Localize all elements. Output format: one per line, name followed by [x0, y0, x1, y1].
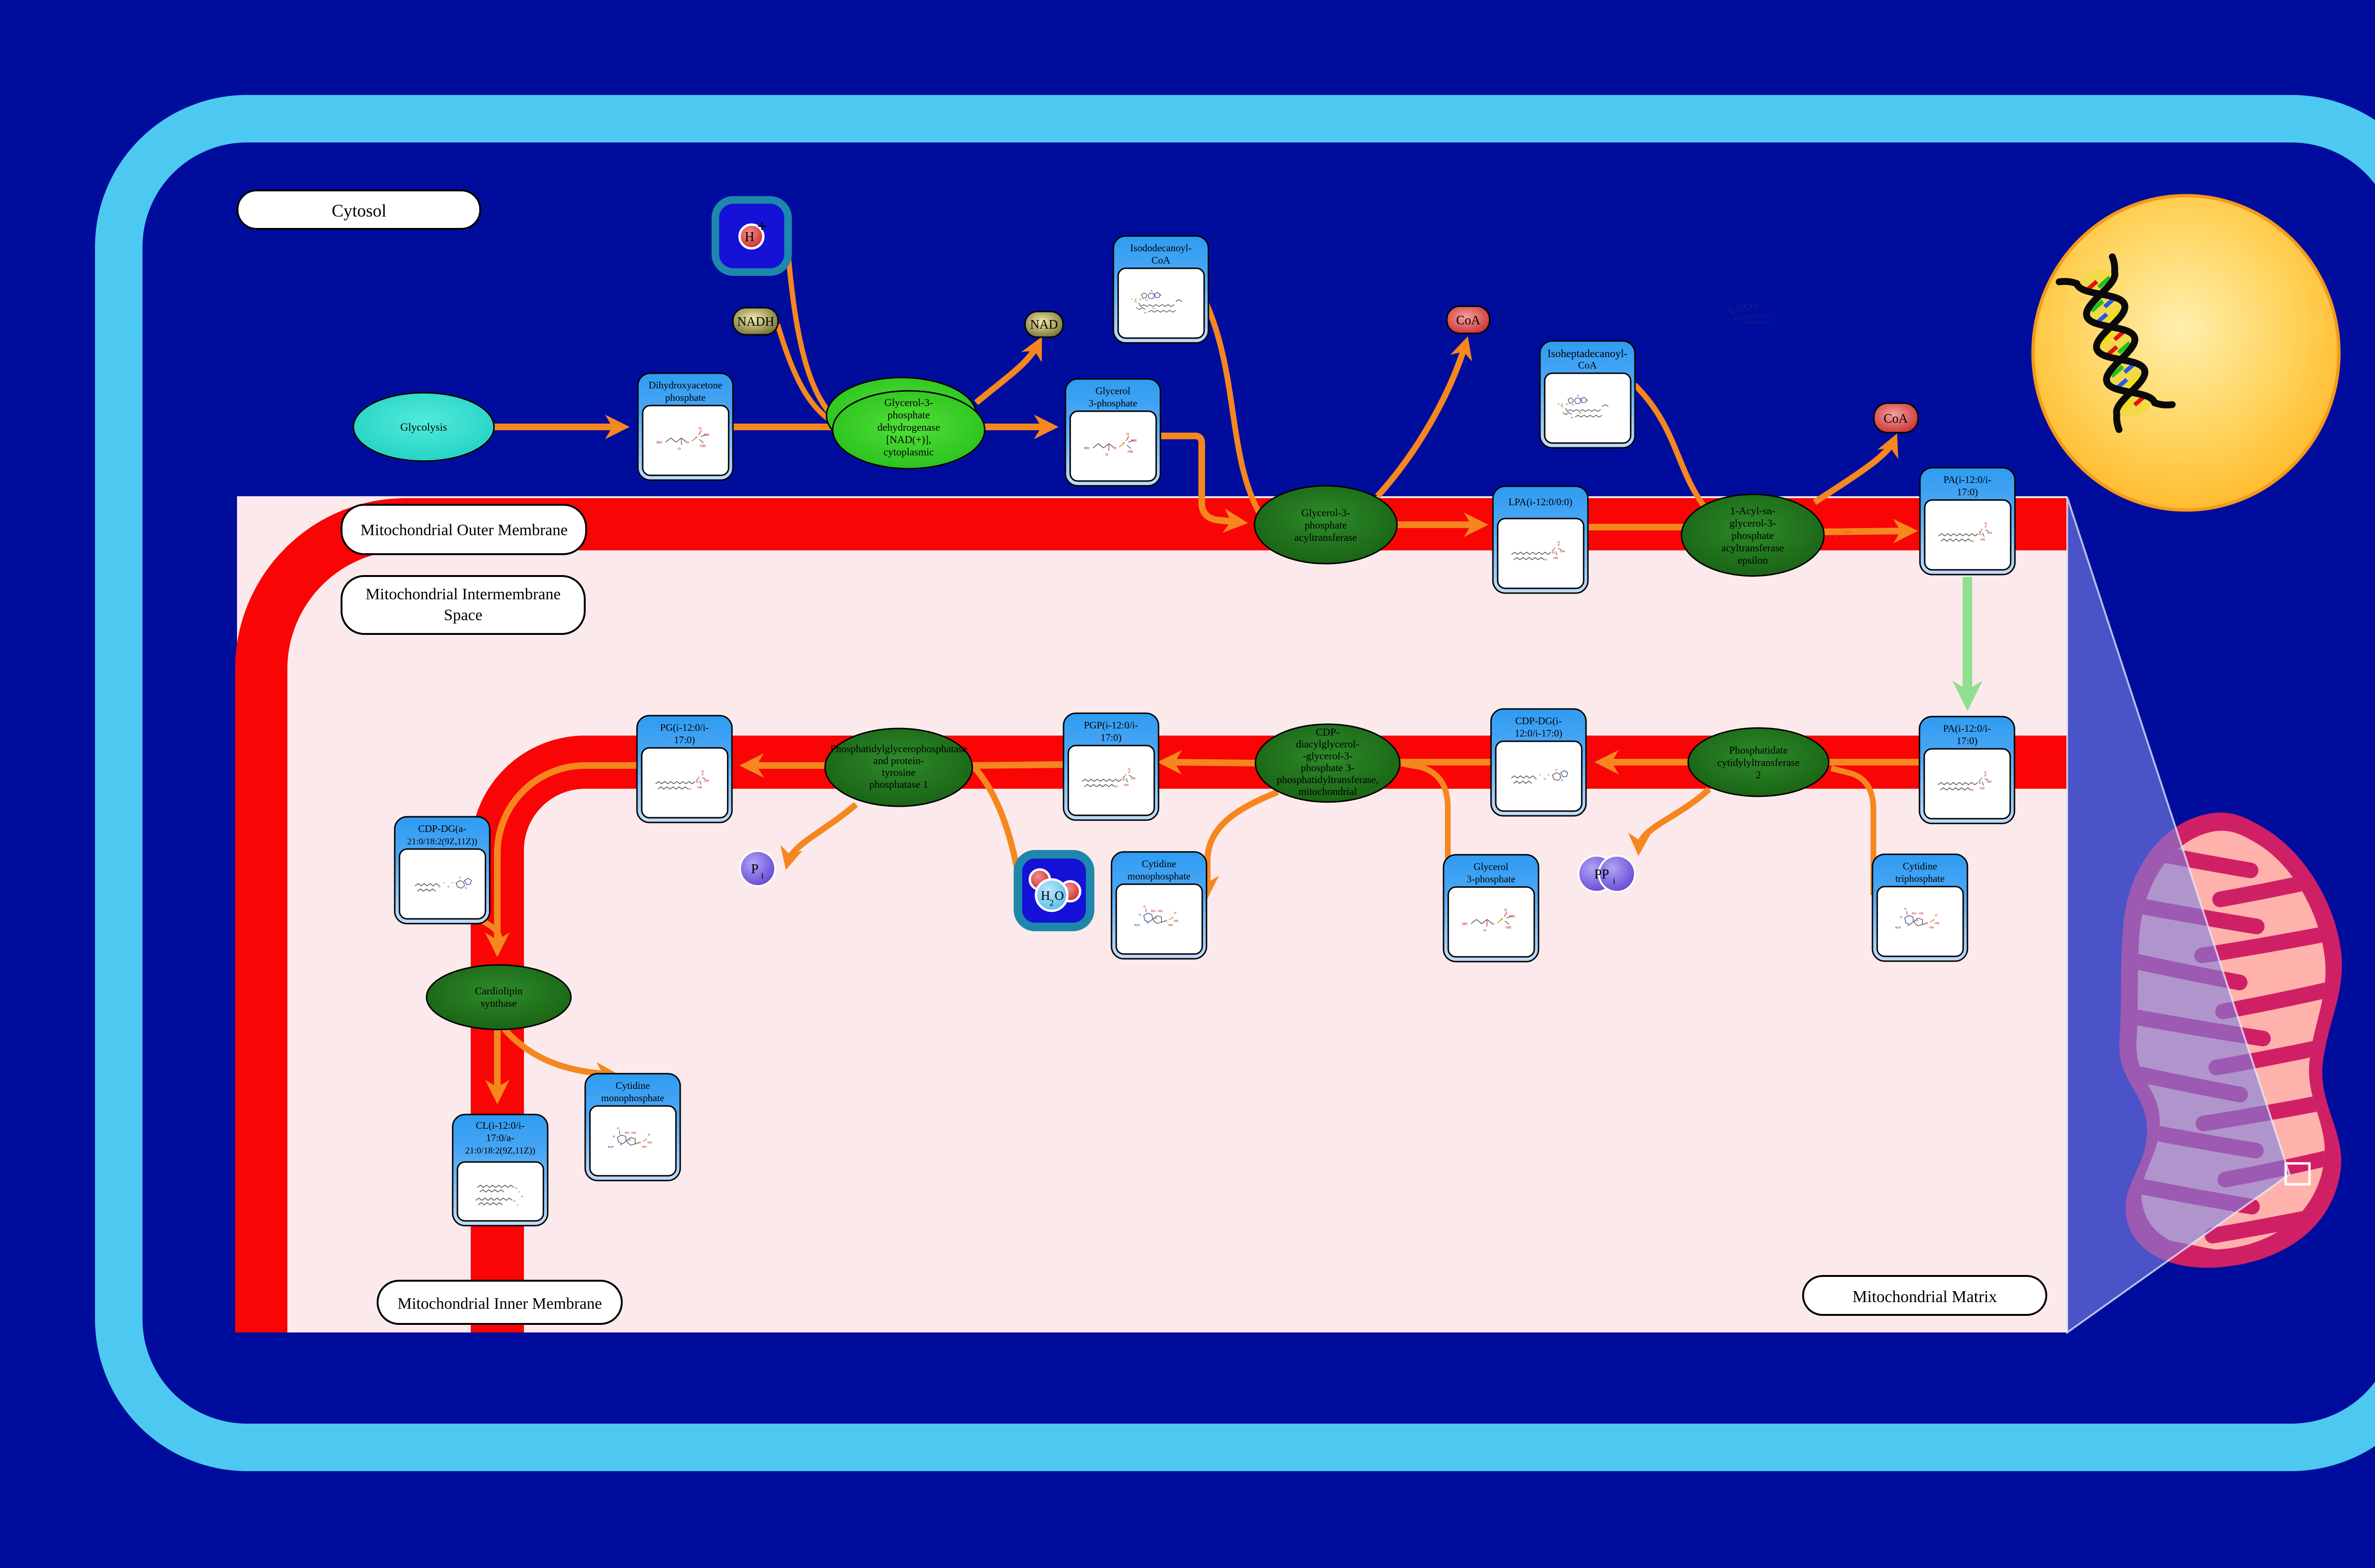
- svg-text:2: 2: [1050, 898, 1054, 907]
- svg-text:3-phosphate: 3-phosphate: [1467, 873, 1516, 885]
- svg-text:NADH: NADH: [737, 314, 774, 329]
- svg-text:H: H: [745, 230, 754, 245]
- svg-text:Phosphatidate: Phosphatidate: [1729, 744, 1787, 756]
- svg-text:tyrosine: tyrosine: [882, 766, 916, 778]
- svg-text:Dihydroxyacetone: Dihydroxyacetone: [648, 379, 722, 391]
- svg-text:-glycerol-3-: -glycerol-3-: [1302, 750, 1352, 762]
- svg-text:synthase: synthase: [481, 997, 517, 1009]
- svg-text:Mitochondrial Inner Membrane: Mitochondrial Inner Membrane: [398, 1295, 602, 1313]
- svg-text:21:0/18:2(9Z,11Z)): 21:0/18:2(9Z,11Z)): [465, 1146, 535, 1156]
- svg-text:H: H: [1041, 888, 1050, 903]
- svg-text:diacylglycerol-: diacylglycerol-: [1296, 738, 1359, 750]
- svg-text:phosphate: phosphate: [665, 392, 705, 403]
- svg-text:phosphate: phosphate: [887, 409, 930, 421]
- svg-text:acyltransferase: acyltransferase: [1294, 531, 1357, 543]
- svg-text:Cytidine: Cytidine: [1903, 860, 1937, 872]
- svg-text:Isoheptadecanoyl-: Isoheptadecanoyl-: [1548, 348, 1628, 359]
- svg-text:PP: PP: [1594, 867, 1609, 882]
- svg-text:17:0): 17:0): [1101, 732, 1121, 743]
- svg-text:Glycerol: Glycerol: [1473, 861, 1509, 872]
- svg-text:PA(i-12:0/i-: PA(i-12:0/i-: [1943, 723, 1991, 734]
- svg-text:P: P: [751, 862, 759, 877]
- svg-text:phosphate 3-: phosphate 3-: [1301, 762, 1354, 774]
- svg-text:21:0/18:2(9Z,11Z)): 21:0/18:2(9Z,11Z)): [407, 837, 477, 847]
- svg-text:monophosphate: monophosphate: [601, 1092, 665, 1104]
- svg-text:Glycolysis: Glycolysis: [400, 421, 447, 433]
- svg-text:glycerol-3-: glycerol-3-: [1729, 517, 1776, 529]
- svg-text:2: 2: [1756, 769, 1761, 781]
- svg-text:Glycerol-3-: Glycerol-3-: [884, 397, 933, 408]
- svg-text:17:0): 17:0): [1957, 735, 1977, 746]
- svg-text:acyltransferase: acyltransferase: [1721, 542, 1784, 554]
- svg-text:phosphatidyltransferase,: phosphatidyltransferase,: [1277, 774, 1378, 785]
- svg-text:Cytidine: Cytidine: [616, 1080, 650, 1091]
- svg-text:Isododecanoyl-: Isododecanoyl-: [1130, 242, 1191, 254]
- svg-text:17:0): 17:0): [674, 734, 695, 746]
- svg-text:PG(i-12:0/i-: PG(i-12:0/i-: [660, 722, 709, 733]
- svg-text:mitochondrial: mitochondrial: [1298, 785, 1357, 797]
- svg-text:Cytidine: Cytidine: [1142, 858, 1176, 869]
- svg-text:3-phosphate: 3-phosphate: [1089, 397, 1138, 409]
- svg-text:monophosphate: monophosphate: [1128, 870, 1191, 882]
- svg-text:triphosphate: triphosphate: [1895, 873, 1945, 884]
- svg-text:PA(i-12:0/i-: PA(i-12:0/i-: [1944, 474, 1992, 485]
- svg-text:12:0/i-17:0): 12:0/i-17:0): [1515, 727, 1562, 739]
- svg-text:1-Acyl-sn-: 1-Acyl-sn-: [1730, 505, 1775, 517]
- svg-text:Space: Space: [444, 606, 482, 624]
- svg-text:dehydrogenase: dehydrogenase: [877, 421, 940, 433]
- svg-text:17:0): 17:0): [1957, 486, 1978, 498]
- svg-text:Glycerol-3-: Glycerol-3-: [1301, 507, 1350, 519]
- svg-text:phosphate: phosphate: [1731, 529, 1774, 541]
- svg-text:CoA: CoA: [1883, 411, 1908, 425]
- svg-text:NAD: NAD: [1030, 317, 1058, 331]
- svg-text:epsilon: epsilon: [1738, 554, 1768, 566]
- svg-text:[NAD(+)],: [NAD(+)],: [886, 434, 931, 445]
- svg-text:CDP-: CDP-: [1316, 726, 1339, 738]
- svg-text:Phosphatidylglycerophosphatase: Phosphatidylglycerophosphatase: [830, 743, 967, 755]
- svg-text:and protein-: and protein-: [874, 755, 924, 766]
- svg-text:cytoplasmic: cytoplasmic: [883, 446, 934, 458]
- svg-text:17:0/a-: 17:0/a-: [486, 1132, 514, 1143]
- svg-text:O: O: [1054, 888, 1064, 903]
- svg-text:i: i: [1613, 876, 1615, 886]
- svg-text:phosphate: phosphate: [1304, 519, 1347, 531]
- svg-text:CoA: CoA: [1578, 359, 1597, 371]
- svg-text:i: i: [761, 871, 763, 881]
- svg-text:CDP-DG(a-: CDP-DG(a-: [418, 823, 466, 834]
- svg-text:PGP(i-12:0/i-: PGP(i-12:0/i-: [1084, 719, 1138, 731]
- svg-text:CoA: CoA: [1456, 313, 1481, 327]
- svg-text:Cardiolipin: Cardiolipin: [475, 985, 522, 997]
- svg-text:cytidylyltransferase: cytidylyltransferase: [1717, 756, 1800, 768]
- svg-text:LPA(i-12:0/0:0): LPA(i-12:0/0:0): [1509, 496, 1573, 508]
- svg-text:Mitochondrial Matrix: Mitochondrial Matrix: [1852, 1287, 1997, 1306]
- svg-text:Mitochondrial Outer Membrane: Mitochondrial Outer Membrane: [361, 521, 568, 539]
- svg-text:CDP-DG(i-: CDP-DG(i-: [1515, 715, 1562, 727]
- svg-text:CoA: CoA: [1151, 255, 1171, 266]
- svg-text:CL(i-12:0/i-: CL(i-12:0/i-: [476, 1120, 525, 1131]
- svg-text:Glycerol: Glycerol: [1095, 385, 1130, 397]
- svg-text:Mitochondrial Intermembrane: Mitochondrial Intermembrane: [366, 586, 561, 603]
- svg-text:Cytosol: Cytosol: [332, 201, 386, 221]
- svg-text:+: +: [757, 217, 767, 236]
- svg-text:phosphatase 1: phosphatase 1: [869, 778, 928, 790]
